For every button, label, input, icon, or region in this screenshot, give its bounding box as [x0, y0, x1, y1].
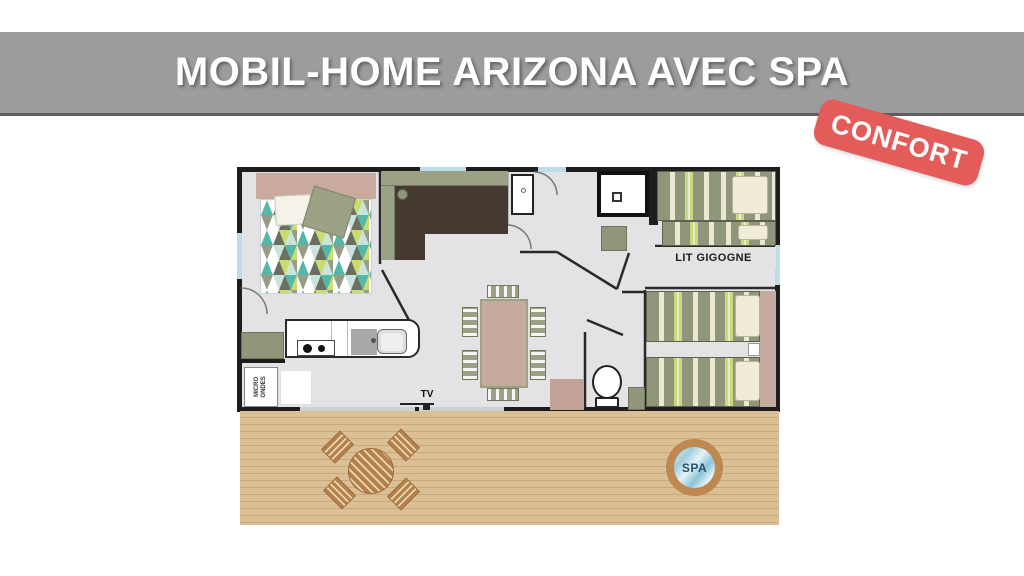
- counter-divider: [347, 321, 348, 356]
- dining-chair-right: [530, 307, 546, 337]
- wall-wc-diag: [587, 320, 623, 335]
- sofa-cushion-detail: [397, 189, 408, 200]
- lit-gigogne-label: LIT GIGOGNE: [675, 252, 752, 264]
- corner-sofa-arm: [395, 234, 425, 260]
- dining-chair-left: [462, 350, 478, 380]
- dining-chair-bottom: [487, 388, 519, 401]
- spa-water: SPA: [674, 447, 715, 488]
- shower: [597, 171, 649, 217]
- wc-cabinet: [550, 379, 584, 410]
- nightstand: [748, 343, 760, 356]
- faucet-icon: [371, 338, 376, 343]
- floor-plan: MICRO ONDES: [237, 167, 780, 412]
- deck-chair: [387, 477, 420, 510]
- sink-basin: [381, 333, 403, 351]
- toilet: [592, 365, 622, 399]
- door-arc-shower-room: [534, 172, 557, 195]
- corner-sofa-seat: [395, 186, 508, 234]
- pillow: [735, 361, 760, 401]
- kitchen-sink: [377, 329, 407, 354]
- lit-gigogne-area: LIT GIGOGNE: [651, 247, 776, 269]
- deck-round-table: [348, 448, 394, 494]
- sofa-back-cushions: [381, 171, 508, 186]
- pillow: [732, 176, 768, 214]
- microwave: MICRO ONDES: [244, 367, 278, 407]
- bathroom-cabinet: [601, 226, 627, 251]
- pillow: [735, 295, 760, 337]
- confort-badge-label: CONFORT: [827, 108, 971, 177]
- burner-icon: [303, 344, 312, 353]
- wall-hall-diag-right: [617, 253, 629, 289]
- wood-deck: SPA: [240, 411, 779, 525]
- door-leaf-master: [382, 270, 410, 322]
- burner-icon: [318, 345, 325, 352]
- wall-wardrobe: [241, 359, 285, 363]
- wc-shelf: [628, 387, 645, 410]
- deck-chair: [321, 430, 354, 463]
- tv-foot-icon: [423, 405, 430, 410]
- kitchen-counter: [285, 319, 420, 358]
- door-arc-bathroom: [507, 225, 531, 249]
- microwave-label: MICRO ONDES: [254, 371, 268, 403]
- twin-beds-headboard: [760, 291, 776, 407]
- washbasin: [511, 174, 534, 215]
- flyer-page: MOBIL-HOME ARIZONA AVEC SPA CONFORT: [0, 0, 1024, 576]
- basin-drain-icon: [521, 188, 526, 193]
- spa-hot-tub: SPA: [666, 439, 723, 496]
- side-table-sketch: [280, 370, 312, 405]
- dining-chair-left: [462, 307, 478, 337]
- toilet-tank: [595, 397, 619, 408]
- sofa-back-left: [381, 186, 395, 260]
- shower-mixer-icon: [612, 192, 622, 202]
- pillow: [738, 225, 768, 240]
- wall-hall-diag-left: [557, 252, 617, 289]
- dining-chair-right: [530, 350, 546, 380]
- dining-chair-top: [487, 285, 519, 298]
- page-title: MOBIL-HOME ARIZONA AVEC SPA: [175, 50, 849, 95]
- tv-label: TV: [397, 389, 457, 400]
- wardrobe-left: [241, 332, 284, 359]
- deck-chair: [387, 428, 420, 461]
- spa-label: SPA: [682, 461, 707, 475]
- dining-table: [480, 299, 528, 388]
- header-banner: MOBIL-HOME ARIZONA AVEC SPA: [0, 32, 1024, 116]
